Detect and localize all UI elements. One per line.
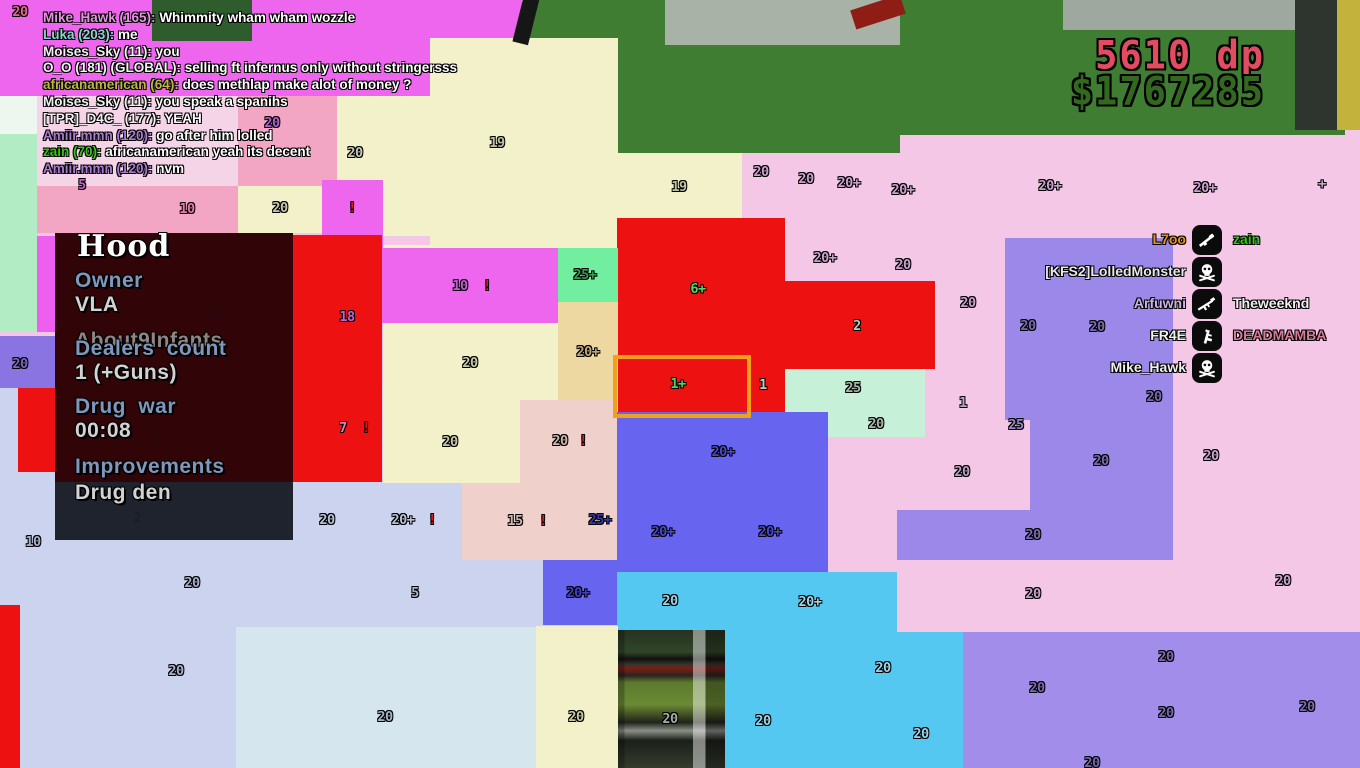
zone-count-label: ! [428,512,436,528]
territory-rect [0,96,37,136]
territory-rect [1337,0,1360,130]
chat-player-name: africanamerican (64): [43,77,183,92]
zone-count-label: 20+ [838,175,861,191]
territory-rect [236,627,536,768]
killer-name: Mike_Hawk [1111,359,1186,375]
drug-war-timer: 00:08 [75,419,131,443]
zone-count-label: 20 [568,709,583,725]
territory-rect [430,37,620,249]
chat-player-name: Luka (203): [43,27,118,42]
zone-count-label: 20 [12,4,27,20]
zone-count-label: 19 [671,179,686,195]
zone-count-label: + [1318,176,1326,192]
zone-count-label: 20 [913,726,928,742]
zone-count-label: 20 [1158,649,1173,665]
zone-count-label: 20 [1025,586,1040,602]
zone-count-label: 20 [755,713,770,729]
kill-feed-row: [KFS2]LolledMonster [0,257,1360,287]
game-screen: 2020201951020!19202020+20+20+20++20+2020… [0,0,1360,768]
zone-count-label: 20 [868,416,883,432]
chat-message: YEAH [164,111,202,126]
kill-feed-row: L7oozain [0,225,1360,255]
zone-count-label: 20+ [1039,178,1062,194]
chat-line: [TPR]_D4C_ (177): YEAH [43,111,202,126]
zone-count-label: 5 [411,585,419,601]
chat-player-name: O_O (181) (GLOBAL): [43,60,185,75]
zone-count-label: 20 [377,709,392,725]
zone-count-label: ! [362,420,370,436]
territory-rect [617,412,828,572]
skull-icon [1192,257,1222,287]
killer-name: L7oo [1153,231,1186,247]
sawnoff-shotgun-icon [1192,225,1222,255]
chat-message: does methlap make alot of money ? [183,77,412,92]
zone-count-label: 20 [442,434,457,450]
zone-count-label: 20+ [759,524,782,540]
chat-player-name: Amiir.mmn (120): [43,128,156,143]
zone-count-label: 15 [507,513,522,529]
chat-message: go after him lolled [156,128,272,143]
zone-count-label: 20 [184,575,199,591]
victim-name: zain [1233,231,1260,247]
chat-player-name: Amiir.mmn (120): [43,161,156,176]
territory-rect [1295,0,1337,130]
killer-name: Arfuwni [1134,295,1186,311]
chat-player-name: Moises_Sky (11): [43,44,156,59]
zone-count-label: 20 [552,433,567,449]
skull-icon [1192,353,1222,383]
chat-line: O_O (181) (GLOBAL): selling ft infernus … [43,60,457,75]
territory-rect [617,572,897,632]
zone-count-label: ! [348,200,356,216]
zone-count-label: 20 [1029,680,1044,696]
zone-count-label: 25+ [589,512,612,528]
chat-line: Moises_Sky (11): you [43,44,180,59]
chat-player-name: zain (70): [43,144,105,159]
chat-line: Moises_Sky (11): you speak a spanihs [43,94,288,109]
zone-count-label: 20+ [1194,180,1217,196]
chat-message: me [118,27,138,42]
chat-player-name: Moises_Sky (11): [43,94,156,109]
territory-rect [536,626,618,768]
zone-count-label: 20 [954,464,969,480]
chat-line: Luka (203): me [43,27,138,42]
territory-rect [520,400,618,483]
zone-count-label: 10 [25,534,40,550]
zone-count-label: 20 [319,512,334,528]
kill-feed-row: ArfuwniTheweeknd [0,289,1360,319]
zone-count-label: 7 [339,420,347,436]
zone-count-label: 20 [798,171,813,187]
chat-message: Whimmity wham wham wozzle [159,10,355,25]
zone-count-label: 20+ [892,182,915,198]
zone-count-label: ! [579,433,587,449]
zone-count-label: 20+ [567,585,590,601]
killer-name: FR4E [1150,327,1186,343]
chat-message: nvm [156,161,184,176]
kill-feed-row: Mike_Hawk [0,353,1360,383]
zone-count-label: 20 [875,660,890,676]
chat-message: africanamerican yeah its decent [105,144,310,159]
zone-count-label: 25 [1008,417,1023,433]
zone-count-label: 20 [1093,453,1108,469]
zone-count-label: 20+ [799,594,822,610]
territory-rect [1063,0,1295,30]
improvements-value: Drug den [75,481,171,505]
chat-line: Amiir.mmn (120): go after him lolled [43,128,273,143]
money-display: $1767285 [1071,69,1265,114]
victim-name: Theweeknd [1233,295,1309,311]
zone-count-label: 20 [272,200,287,216]
zone-count-label: ! [539,513,547,529]
tec9-icon [1192,321,1222,351]
rifle-icon [1192,289,1222,319]
zone-count-label: 20 [1275,573,1290,589]
zone-count-label: 20 [662,711,677,727]
zone-count-label: 10 [179,201,194,217]
territory-rect [430,0,522,38]
zone-count-label: 20+ [652,524,675,540]
chat-message: selling ft infernus only without stringe… [185,60,457,75]
chat-line: Amiir.mmn (120): nvm [43,161,184,176]
zone-count-label: 20 [662,593,677,609]
chat-player-name: Mike_Hawk (165): [43,10,159,25]
zone-count-label: 1 [959,395,967,411]
chat-message: you [156,44,180,59]
zone-count-label: 20 [1084,755,1099,768]
chat-message: you speak a spanihs [156,94,288,109]
zone-count-label: 19 [489,135,504,151]
zone-count-label: 20+ [712,444,735,460]
zone-count-label: 20 [168,663,183,679]
chat-line: Mike_Hawk (165): Whimmity wham wham wozz… [43,10,355,25]
chat-line: africanamerican (64): does methlap make … [43,77,411,92]
chat-line: zain (70): africanamerican yeah its dece… [43,144,310,159]
drug-war-label: Drug war [75,395,176,419]
zone-count-label: 5 [78,177,86,193]
chat-player-name: [TPR]_D4C_ (177): [43,111,164,126]
improvements-label: Improvements [75,455,225,479]
territory-rect [0,605,20,768]
zone-count-label: 20 [347,145,362,161]
zone-count-label: 20 [753,164,768,180]
kill-feed-row: FR4EDEADMAMBA [0,321,1360,351]
zone-count-label: 20+ [392,512,415,528]
map-satellite-patch [618,630,725,768]
victim-name: DEADMAMBA [1233,327,1326,343]
zone-count-label: 20 [1146,389,1161,405]
territory-rect [18,388,55,472]
zone-count-label: 20 [1299,699,1314,715]
zone-count-label: 20 [1203,448,1218,464]
killer-name: [KFS2]LolledMonster [1045,263,1186,279]
zone-count-label: 20 [1158,705,1173,721]
zone-count-label: 20 [1025,527,1040,543]
